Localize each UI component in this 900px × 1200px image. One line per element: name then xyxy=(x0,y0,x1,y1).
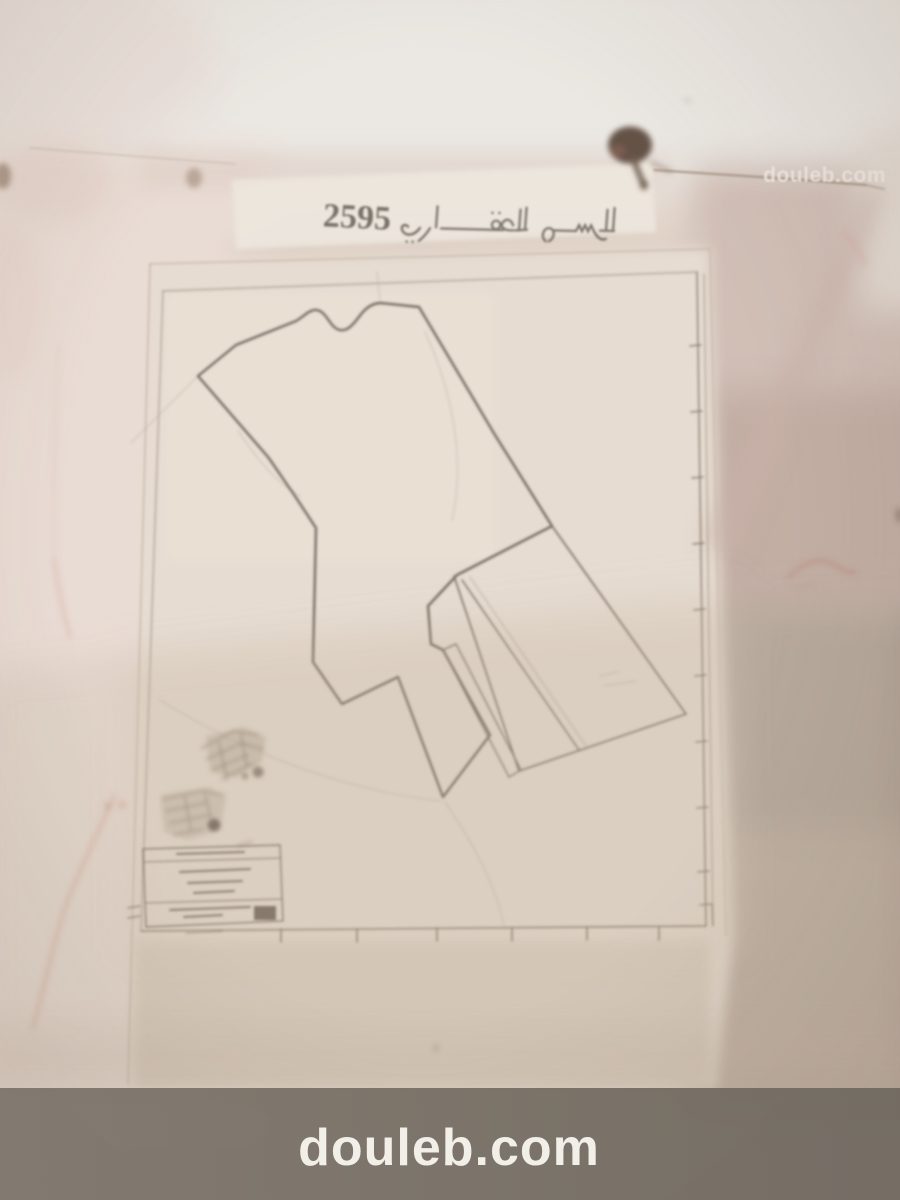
svg-text:douleb.com: douleb.com xyxy=(298,1119,600,1177)
